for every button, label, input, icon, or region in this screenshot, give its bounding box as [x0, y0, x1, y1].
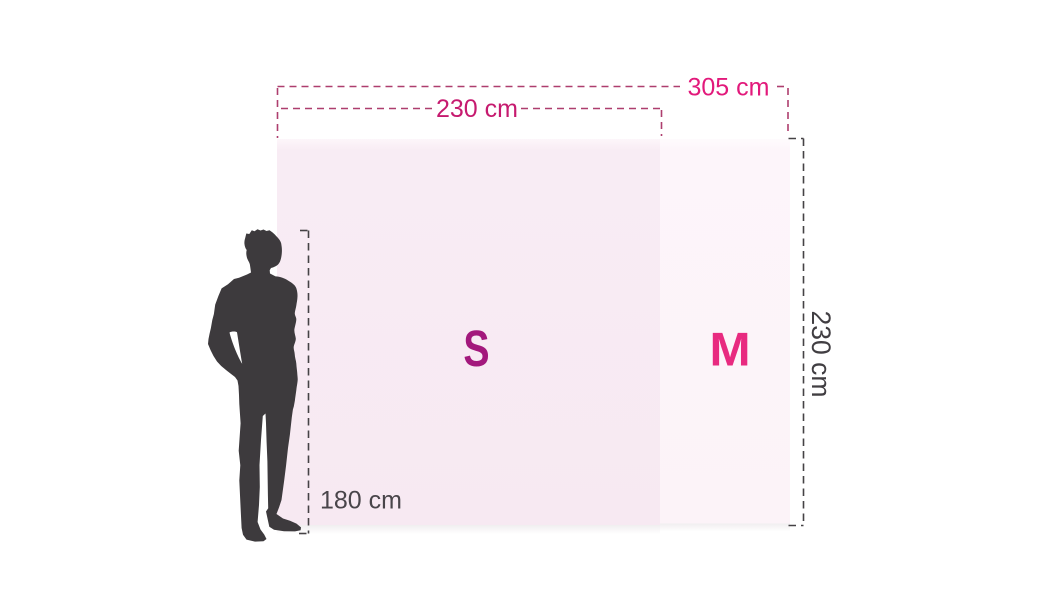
svg-text:230 cm: 230 cm [806, 311, 836, 398]
svg-text:305 cm: 305 cm [688, 74, 770, 102]
svg-text:S: S [463, 320, 489, 377]
svg-text:180 cm: 180 cm [320, 487, 402, 515]
svg-text:M: M [709, 324, 750, 377]
svg-text:230 cm: 230 cm [436, 95, 518, 123]
